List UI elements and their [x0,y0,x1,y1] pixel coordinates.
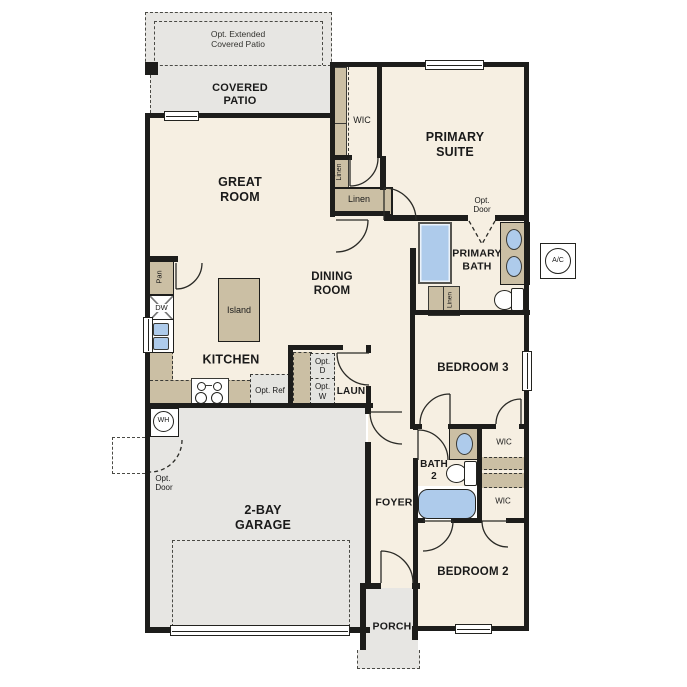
opt-washer-box: Opt. W [310,378,335,405]
primary-suite-label: PRIMARY SUITE [426,130,485,160]
wall-segment [495,215,528,221]
wall-segment [145,403,373,408]
covered-patio-label: COVERED PATIO [212,82,268,108]
wall-segment [380,156,386,190]
garage-label: 2-BAY GARAGE [235,503,291,533]
floor-plan: Island DW Opt. Ref Opt. D Opt. W WH A/C [0,0,687,687]
wall-segment [360,589,366,650]
opt-dryer-box: Opt. D [310,353,335,379]
cooktop [191,378,229,406]
dishwasher-label: DW [154,304,169,313]
wic-primary-label: WIC [353,115,371,125]
bedroom3-label: BEDROOM 3 [437,362,508,376]
wall-segment [288,345,343,350]
vanity-sink-icon [506,229,522,250]
burner-icon [213,382,222,391]
wall-segment [197,113,333,118]
island-label: Island [227,305,251,315]
sink-basin-2 [153,337,169,350]
wall-segment [413,626,458,631]
wall-segment [489,626,529,631]
wall-segment [410,315,415,429]
ac-unit: A/C [540,243,576,279]
opt-dryer-label: Opt. D [311,357,334,375]
wall-segment [145,113,150,318]
wall-segment [384,215,468,221]
wall-segment [451,518,482,523]
wall-segment [410,248,416,315]
wall-segment [145,350,150,633]
primary-toilet-tank [511,288,524,311]
laundry-label: LAUN [337,386,366,398]
window-kitchen [143,317,153,353]
vanity-sink-icon [506,256,522,277]
opt-door-garage-label: Opt. Door [155,474,172,492]
water-heater: WH [150,408,179,437]
primary-shower [418,222,452,284]
window-bedroom2 [455,624,492,634]
wall-segment [330,155,352,160]
wall-segment [365,408,371,414]
linen-wic-label: Linen [336,163,344,180]
porch-label: PORCH [373,621,412,634]
garage-door [170,625,350,636]
wall-segment [410,310,530,315]
wall-segment [413,523,418,626]
opt-washer-label: Opt. W [311,382,334,400]
vanity-sink-icon [456,433,473,455]
patio-sliding-door [164,111,199,121]
opt-ref-label: Opt. Ref [255,386,285,395]
linen-hall-label: Linen [348,194,370,204]
bath2-tub [418,489,476,519]
wall-segment [524,62,529,352]
water-heater-label: WH [158,417,170,425]
window-bedroom3 [522,351,532,391]
opt-door-suite-label: Opt. Door [473,196,490,214]
wic-shelf-strip-2 [479,473,527,488]
wall-segment [377,62,382,158]
wic-primary-shelf-dash [348,67,349,156]
wall-segment [330,62,335,217]
primary-bath-label: PRIMARY BATH [452,247,501,272]
opt-extended-patio-label: Opt. Extended Covered Patio [211,30,265,50]
porch-extension-area [357,650,420,669]
bedroom2-label: BEDROOM 2 [437,566,508,580]
bath2-label: BATH 2 [420,459,448,483]
wic-bedroom2-label: WIC [495,496,511,505]
wall-segment [477,429,482,520]
wall-segment [145,256,178,262]
linen-bath-label: Linen [446,292,453,308]
garage-interior-dash [172,540,350,632]
pantry-label: Pan [156,270,165,283]
porch-area [366,588,418,650]
kitchen-label: KITCHEN [203,353,260,368]
wall-segment [145,627,172,633]
wic-primary-shelf [333,67,347,158]
great-room-label: GREAT ROOM [218,175,262,205]
wall-segment [519,424,529,429]
wall-segment [413,424,418,430]
wall-segment [365,442,371,588]
wall-segment [413,458,418,520]
ac-unit-label: A/C [552,257,564,265]
burner-icon [197,382,206,391]
wall-segment [366,345,371,353]
bath2-toilet-tank [464,461,477,486]
foyer-label: FOYER [375,497,412,510]
window-primary-suite [425,60,484,70]
wall-segment [288,345,293,408]
wall-segment [145,62,158,75]
bath2-vanity [449,427,479,460]
wic-bedroom3-label: WIC [496,437,512,446]
sink-basin-1 [153,323,169,336]
wall-segment [448,424,496,429]
kitchen-island: Island [218,278,260,342]
wall-segment [506,518,529,523]
wall-segment [412,626,418,640]
wall-segment [330,211,390,216]
dining-room-label: DINING ROOM [311,271,352,299]
wall-segment [482,62,528,67]
wic-shelf-strip-1 [479,457,527,470]
burner-link [205,385,212,386]
